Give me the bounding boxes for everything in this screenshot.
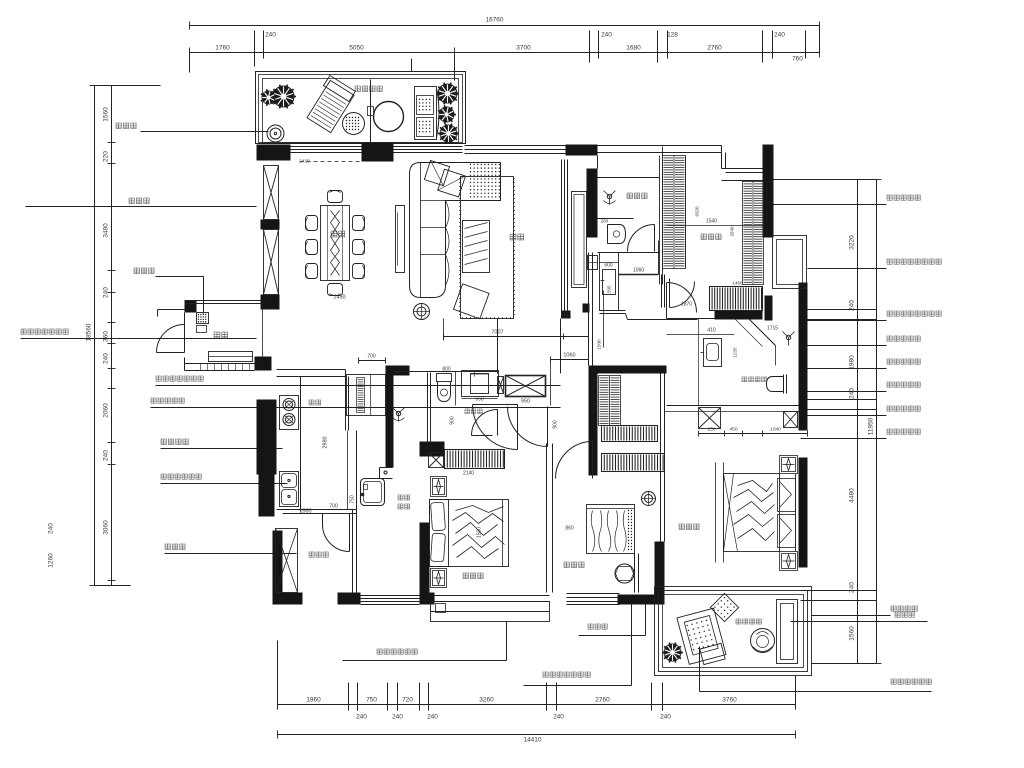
svg-text:2980: 2980 <box>323 436 329 448</box>
svg-text:750: 750 <box>350 495 356 504</box>
svg-text:700: 700 <box>367 354 376 360</box>
svg-text:450: 450 <box>729 427 737 433</box>
svg-text:240: 240 <box>774 32 785 39</box>
svg-text:240: 240 <box>427 714 438 721</box>
svg-text:750: 750 <box>366 697 377 704</box>
svg-text:280: 280 <box>601 219 609 224</box>
svg-text:600: 600 <box>604 263 613 269</box>
svg-text:2450: 2450 <box>333 295 345 301</box>
svg-text:720: 720 <box>402 697 413 704</box>
svg-text:2760: 2760 <box>707 45 722 52</box>
svg-text:410: 410 <box>707 328 716 334</box>
svg-text:240: 240 <box>265 32 276 39</box>
svg-text:1235: 1235 <box>733 347 738 358</box>
svg-text:3060: 3060 <box>103 520 110 535</box>
svg-text:240: 240 <box>356 714 367 721</box>
svg-text:11950: 11950 <box>868 417 875 435</box>
svg-text:240: 240 <box>392 714 403 721</box>
svg-text:1560: 1560 <box>103 107 110 122</box>
svg-text:240: 240 <box>103 287 110 298</box>
svg-text:220: 220 <box>103 151 110 162</box>
svg-text:760: 760 <box>792 56 803 63</box>
svg-text:2640: 2640 <box>730 226 735 237</box>
svg-text:3260: 3260 <box>479 697 494 704</box>
svg-text:1060: 1060 <box>633 268 644 274</box>
svg-text:360: 360 <box>103 331 110 342</box>
svg-text:2760: 2760 <box>595 697 610 704</box>
svg-text:1460: 1460 <box>732 281 743 286</box>
svg-text:4480: 4480 <box>849 488 856 503</box>
svg-text:1040: 1040 <box>770 427 781 433</box>
svg-text:1540: 1540 <box>706 219 717 225</box>
svg-text:5050: 5050 <box>349 45 364 52</box>
svg-text:1980: 1980 <box>849 355 856 370</box>
svg-text:3760: 3760 <box>722 697 737 704</box>
svg-text:800: 800 <box>442 367 451 373</box>
svg-text:1505: 1505 <box>607 285 612 296</box>
svg-text:1960: 1960 <box>306 697 321 704</box>
svg-text:3220: 3220 <box>849 235 856 250</box>
svg-text:240: 240 <box>553 714 564 721</box>
svg-text:900: 900 <box>553 420 559 429</box>
svg-text:1680: 1680 <box>626 45 641 52</box>
svg-text:128: 128 <box>667 32 678 39</box>
svg-text:1060: 1060 <box>563 353 575 359</box>
svg-text:240: 240 <box>660 714 671 721</box>
svg-text:550: 550 <box>475 397 484 403</box>
svg-text:240: 240 <box>849 582 856 593</box>
svg-text:14410: 14410 <box>523 737 541 744</box>
svg-text:1760: 1760 <box>215 45 230 52</box>
svg-text:240: 240 <box>849 388 856 399</box>
svg-text:860: 860 <box>565 526 574 532</box>
svg-text:6920: 6920 <box>695 206 700 217</box>
svg-text:3480: 3480 <box>103 223 110 238</box>
svg-text:1260: 1260 <box>48 553 55 568</box>
svg-text:1715: 1715 <box>767 326 778 332</box>
svg-text:240: 240 <box>601 32 612 39</box>
svg-text:240: 240 <box>48 523 55 534</box>
svg-text:900: 900 <box>450 416 456 425</box>
svg-text:2430: 2430 <box>299 159 310 165</box>
svg-text:700: 700 <box>329 504 338 510</box>
svg-text:240: 240 <box>103 353 110 364</box>
svg-text:1500: 1500 <box>477 527 483 538</box>
svg-text:950: 950 <box>521 399 530 405</box>
svg-text:240: 240 <box>103 450 110 461</box>
svg-text:1870: 1870 <box>681 302 692 308</box>
svg-text:2140: 2140 <box>463 471 474 477</box>
svg-text:3700: 3700 <box>516 45 531 52</box>
svg-text:1560: 1560 <box>849 626 856 641</box>
svg-text:1500: 1500 <box>597 339 602 350</box>
svg-text:2060: 2060 <box>103 403 110 418</box>
svg-text:16760: 16760 <box>485 17 503 24</box>
svg-text:250: 250 <box>707 427 715 433</box>
